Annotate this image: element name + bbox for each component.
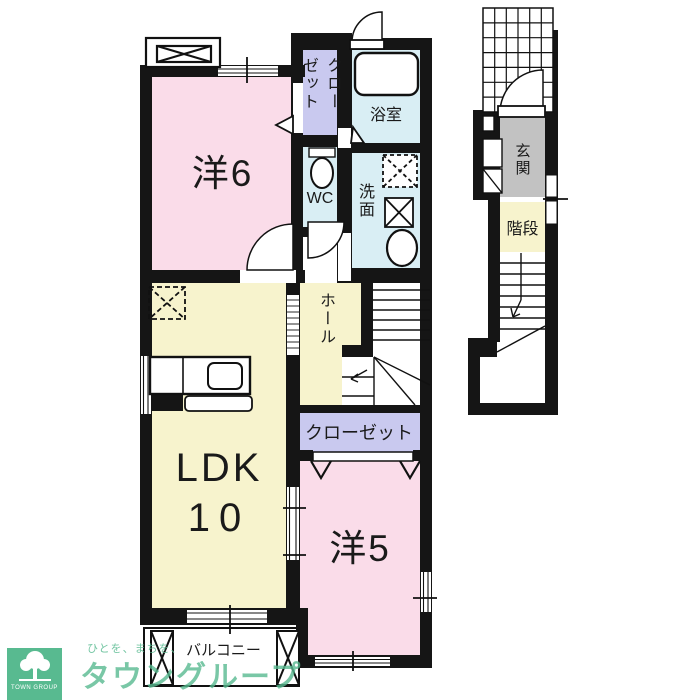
town-group-logo-text: TOWN GROUP — [11, 685, 58, 691]
room-label-closet-lower: クローゼット — [298, 416, 420, 448]
sink-unit-icon — [385, 198, 413, 227]
ldk-label-line1: LDK — [176, 443, 263, 493]
floorplan-linework — [0, 0, 700, 700]
refrigerator-box-icon — [149, 287, 185, 319]
bathtub-icon — [355, 53, 418, 95]
window-shutter-box-icon — [146, 38, 220, 67]
room-label-wc: WC — [303, 187, 337, 211]
town-group-logo: TOWN GROUP — [7, 648, 62, 700]
closet-fold-door-icon — [276, 116, 293, 134]
stairwell-stairs-icon — [497, 253, 545, 352]
floorplan-canvas: 洋6 クローゼット 浴室 WC 洗面 ホール LDK 10 クローゼット 洋5 … — [0, 0, 700, 700]
room-label-stairs: 階段 — [500, 212, 545, 242]
room-label-closet-upper: クローゼット — [302, 54, 338, 114]
room-label-entrance: 玄関 — [506, 128, 538, 192]
basin-icon — [387, 230, 417, 266]
room-label-bathroom: 浴室 — [352, 100, 420, 126]
town-group-tree-icon — [13, 648, 57, 686]
room-label-western5: 洋5 — [300, 515, 420, 575]
bath-door-icon — [351, 127, 364, 143]
toilet-icon — [309, 148, 335, 188]
washer-pan-icon — [383, 155, 417, 187]
western6-door-arc — [247, 224, 293, 270]
room-label-western6: 洋6 — [160, 140, 285, 200]
closet-chevron-icons — [311, 452, 420, 478]
bathroom-top-door-arc — [352, 12, 382, 42]
brand-company-name: タウングループ — [80, 652, 302, 696]
room-label-hall: ホール — [310, 284, 340, 354]
room-label-washroom: 洗面 — [350, 170, 378, 232]
ldk-label-line2: 10 — [188, 493, 251, 543]
room-label-ldk: LDK 10 — [152, 428, 286, 558]
